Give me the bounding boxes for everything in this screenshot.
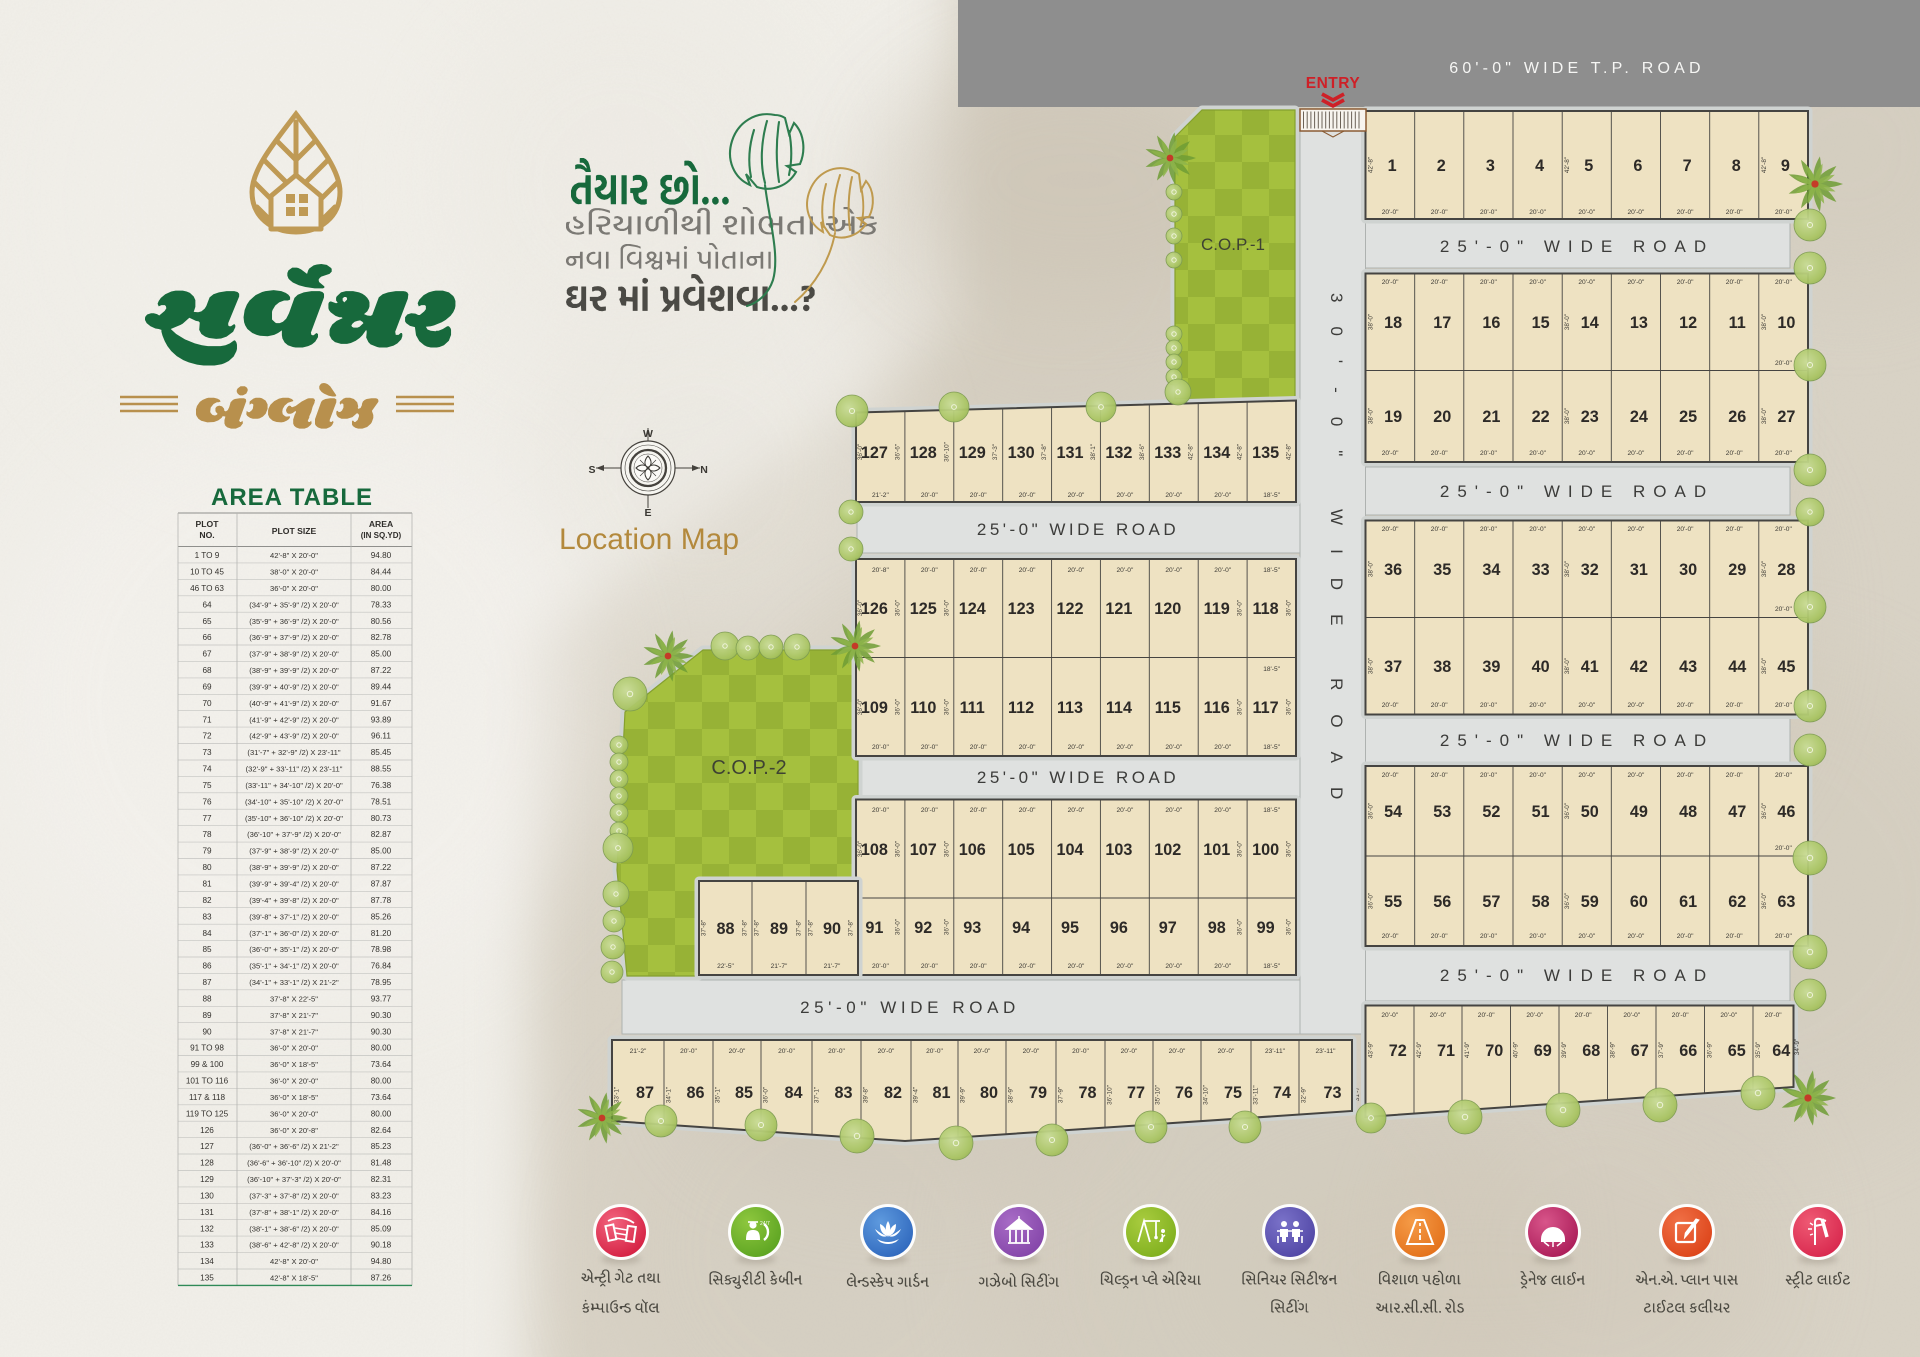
svg-text:20'-0": 20'-0" [1628,526,1645,533]
svg-text:41: 41 [1581,658,1599,676]
svg-text:20'-0": 20'-0" [1578,933,1595,940]
svg-text:88: 88 [716,920,734,938]
svg-text:119: 119 [1204,600,1230,618]
svg-text:(37'-1" + 36'-0" /2) X 20'-0": (37'-1" + 36'-0" /2) X 20'-0" [249,929,339,938]
svg-text:117: 117 [1253,699,1279,717]
svg-text:38'-6": 38'-6" [1139,444,1146,460]
svg-text:85.23: 85.23 [371,1142,392,1151]
svg-text:(36'-9" + 37'-9" /2) X 20'-0": (36'-9" + 37'-9" /2) X 20'-0" [249,633,339,642]
svg-text:42'-8": 42'-8" [1368,157,1375,173]
svg-text:20'-0": 20'-0" [1677,702,1694,709]
svg-text:71: 71 [202,715,212,724]
svg-text:38: 38 [1433,658,1451,676]
svg-text:20'-0": 20'-0" [1382,279,1399,286]
svg-text:86: 86 [686,1084,704,1102]
svg-text:20'-0": 20'-0" [1775,279,1792,286]
svg-text:(36'-10" + 37'-9" /2) X 20'-0": (36'-10" + 37'-9" /2) X 20'-0" [247,830,341,839]
svg-text:69: 69 [1534,1042,1552,1060]
svg-text:83: 83 [834,1084,852,1102]
svg-text:125: 125 [910,600,937,618]
svg-text:20'-0": 20'-0" [1165,567,1182,574]
svg-text:93.89: 93.89 [371,715,392,724]
svg-text:37'-8": 37'-8" [1041,444,1048,460]
svg-text:91.67: 91.67 [371,699,392,708]
svg-text:131: 131 [1056,444,1083,462]
svg-text:36'-0": 36'-0" [1368,803,1375,819]
svg-text:133: 133 [1154,444,1181,462]
svg-text:21'-7": 21'-7" [824,963,841,970]
svg-text:127: 127 [200,1142,214,1151]
svg-text:80.00: 80.00 [371,1044,392,1053]
svg-text:20'-0": 20'-0" [970,807,987,814]
svg-text:20'-0": 20'-0" [1480,279,1497,286]
svg-text:14: 14 [1581,314,1599,332]
svg-text:106: 106 [959,841,986,859]
svg-text:127: 127 [861,444,888,462]
svg-text:(39'-9" + 40'-9" /2) X 20'-0": (39'-9" + 40'-9" /2) X 20'-0" [249,683,339,692]
svg-text:99 & 100: 99 & 100 [191,1060,224,1069]
svg-text:33'-1": 33'-1" [614,1087,621,1103]
svg-text:45: 45 [1777,658,1795,676]
svg-text:10: 10 [1777,314,1795,332]
svg-text:78: 78 [1078,1084,1096,1102]
svg-text:90.18: 90.18 [371,1241,392,1250]
svg-text:74: 74 [1273,1084,1291,1102]
svg-text:121: 121 [1105,600,1132,618]
svg-text:E: E [644,507,651,519]
svg-text:29: 29 [1728,561,1746,579]
svg-text:36: 36 [1384,561,1402,579]
svg-text:27: 27 [1777,408,1795,426]
svg-text:36'-0": 36'-0" [1286,699,1293,715]
svg-text:72: 72 [1389,1042,1407,1060]
svg-text:24/7: 24/7 [760,1221,770,1227]
svg-text:20'-0": 20'-0" [921,744,938,751]
svg-text:36'-0": 36'-0" [1237,919,1244,935]
svg-text:96.11: 96.11 [371,732,391,741]
svg-text:36'-0": 36'-0" [1761,803,1768,819]
svg-text:111: 111 [960,699,985,717]
svg-text:20'-0": 20'-0" [1765,1012,1782,1019]
svg-text:36'-0": 36'-0" [1564,803,1571,819]
svg-text:20'-0": 20'-0" [970,567,987,574]
svg-text:20'-0": 20'-0" [1019,807,1036,814]
svg-text:74: 74 [202,765,212,774]
svg-text:42'-8" X 18'-5": 42'-8" X 18'-5" [270,1274,318,1283]
svg-text:20'-0": 20'-0" [1117,963,1134,970]
svg-text:18'-5": 18'-5" [1263,963,1280,970]
svg-text:101 TO 116: 101 TO 116 [186,1077,229,1086]
svg-text:31: 31 [1630,561,1648,579]
svg-text:20'-0": 20'-0" [1480,209,1497,216]
svg-text:36'-0": 36'-0" [1237,600,1244,616]
svg-text:82.64: 82.64 [371,1126,392,1135]
svg-text:36'-0": 36'-0" [894,919,901,935]
svg-text:20'-0": 20'-0" [1165,492,1182,499]
svg-text:20'-0": 20'-0" [1529,772,1546,779]
svg-text:(37'-8" + 38'-1" /2) X 20'-0": (37'-8" + 38'-1" /2) X 20'-0" [249,1208,339,1217]
svg-text:50: 50 [1581,803,1599,821]
svg-text:135: 135 [1252,444,1279,462]
svg-text:4: 4 [1535,157,1544,175]
svg-text:23'-11": 23'-11" [1265,1048,1286,1055]
svg-text:(36'-6" + 36'-10" /2) X 20'-0": (36'-6" + 36'-10" /2) X 20'-0" [247,1159,341,1168]
svg-text:80: 80 [980,1084,998,1102]
svg-text:35'-9": 35'-9" [1755,1042,1762,1058]
svg-text:82.31: 82.31 [371,1175,392,1184]
svg-text:62: 62 [1728,893,1746,911]
svg-text:128: 128 [200,1159,214,1168]
svg-text:82.87: 82.87 [371,830,392,839]
svg-text:37'-1": 37'-1" [814,1087,821,1103]
svg-text:131: 131 [200,1208,214,1217]
svg-text:20'-0": 20'-0" [1382,209,1399,216]
svg-text:100: 100 [1252,841,1279,859]
svg-text:75: 75 [202,781,212,790]
svg-text:20'-0": 20'-0" [1478,1012,1495,1019]
svg-text:35'-10": 35'-10" [1155,1085,1162,1105]
svg-text:76: 76 [202,797,212,806]
svg-text:85: 85 [735,1084,753,1102]
svg-text:102: 102 [1154,841,1181,859]
svg-text:57: 57 [1482,893,1500,911]
svg-text:87.26: 87.26 [371,1274,392,1283]
svg-text:42'-8" X 20'-0": 42'-8" X 20'-0" [270,551,318,560]
svg-text:48: 48 [1679,803,1697,821]
svg-text:65: 65 [202,617,212,626]
svg-text:44: 44 [1728,658,1746,676]
svg-text:20'-0": 20'-0" [921,963,938,970]
svg-text:10 TO 45: 10 TO 45 [190,568,224,577]
svg-text:PLOT SIZE: PLOT SIZE [272,526,317,536]
svg-text:135: 135 [200,1274,214,1283]
svg-text:19: 19 [1384,408,1402,426]
svg-text:20'-0": 20'-0" [1720,1012,1737,1019]
svg-text:20'-0": 20'-0" [1775,845,1792,852]
svg-text:(34'-9" + 35'-9" /2) X 20'-0": (34'-9" + 35'-9" /2) X 20'-0" [249,600,339,609]
svg-text:36'-0": 36'-0" [943,841,950,857]
svg-text:73: 73 [1323,1084,1341,1102]
svg-text:20'-0": 20'-0" [1726,450,1743,457]
svg-text:(35'-1" + 34'-1" /2) X 20'-0": (35'-1" + 34'-1" /2) X 20'-0" [249,962,339,971]
svg-text:20'-0": 20'-0" [1775,209,1792,216]
svg-text:38'-9": 38'-9" [1008,1087,1015,1103]
svg-text:20'-0": 20'-0" [1381,1012,1398,1019]
svg-text:130: 130 [1008,444,1035,462]
svg-text:81: 81 [202,880,212,889]
svg-text:20'-0": 20'-0" [1480,933,1497,940]
svg-text:93: 93 [963,919,981,937]
svg-text:41'-9": 41'-9" [1464,1042,1471,1058]
svg-text:108: 108 [861,841,888,859]
svg-text:36'-0" X 20'-8": 36'-0" X 20'-8" [270,1126,318,1135]
svg-text:20'-0": 20'-0" [1628,279,1645,286]
svg-text:64: 64 [1772,1042,1790,1060]
svg-text:37'-8" X 22'-5": 37'-8" X 22'-5" [270,994,318,1003]
svg-text:38'-0": 38'-0" [1564,314,1571,330]
svg-text:20'-0": 20'-0" [1068,492,1085,499]
svg-text:37'-8" X 21'-7": 37'-8" X 21'-7" [270,1011,318,1020]
svg-text:20'-0": 20'-0" [1578,279,1595,286]
svg-text:20'-0": 20'-0" [1117,567,1134,574]
svg-text:115: 115 [1155,699,1181,717]
svg-text:20'-0": 20'-0" [1578,772,1595,779]
svg-text:20'-0": 20'-0" [1628,702,1645,709]
svg-text:36'-0": 36'-0" [763,1087,770,1103]
svg-text:20'-0": 20'-0" [1121,1048,1138,1055]
svg-text:84: 84 [784,1084,802,1102]
svg-text:36'-0": 36'-0" [857,600,864,616]
svg-text:36'-0": 36'-0" [857,841,864,857]
svg-text:80.73: 80.73 [371,814,392,823]
svg-text:123: 123 [1008,600,1035,618]
svg-text:20'-0": 20'-0" [1775,933,1792,940]
svg-text:20'-0": 20'-0" [1775,360,1792,367]
svg-text:7: 7 [1683,157,1692,175]
svg-text:34'-9": 34'-9" [1794,1039,1801,1055]
svg-text:20'-0": 20'-0" [1775,772,1792,779]
svg-text:129: 129 [959,444,986,462]
svg-text:46 TO 63: 46 TO 63 [190,584,224,593]
svg-text:20'-0": 20'-0" [1431,209,1448,216]
svg-text:54: 54 [1384,803,1402,821]
svg-text:20'-0": 20'-0" [1529,450,1546,457]
svg-text:55: 55 [1384,893,1402,911]
svg-text:77: 77 [1127,1084,1145,1102]
svg-text:20'-0": 20'-0" [1214,807,1231,814]
svg-text:37'-8" X 21'-7": 37'-8" X 21'-7" [270,1027,318,1036]
svg-text:PLOT: PLOT [196,519,220,529]
svg-text:38'-0": 38'-0" [1368,408,1375,424]
svg-text:(38'-1" + 38'-6" /2) X 20'-0": (38'-1" + 38'-6" /2) X 20'-0" [249,1224,339,1233]
svg-text:20'-8": 20'-8" [872,567,889,574]
svg-text:20: 20 [1433,408,1451,426]
svg-text:20'-0": 20'-0" [1382,933,1399,940]
svg-text:20'-0": 20'-0" [1775,450,1792,457]
svg-text:24: 24 [1630,408,1648,426]
svg-text:20'-0": 20'-0" [1726,933,1743,940]
svg-text:(38'-6" + 42'-8" /2) X 20'-0": (38'-6" + 42'-8" /2) X 20'-0" [249,1241,339,1250]
svg-text:40'-9": 40'-9" [1513,1042,1520,1058]
svg-text:37'-8": 37'-8" [808,920,815,936]
svg-text:20'-0": 20'-0" [1019,963,1036,970]
svg-text:20'-0": 20'-0" [1068,963,1085,970]
svg-text:W: W [643,428,653,440]
svg-text:20'-0": 20'-0" [1726,772,1743,779]
svg-text:1: 1 [1388,157,1397,175]
svg-text:75: 75 [1224,1084,1242,1102]
svg-text:80.00: 80.00 [371,1077,392,1086]
svg-text:N: N [700,464,708,476]
svg-text:26: 26 [1728,408,1746,426]
svg-text:22: 22 [1532,408,1550,426]
svg-text:(41'-9" + 42'-9" /2) X 20'-0": (41'-9" + 42'-9" /2) X 20'-0" [249,715,339,724]
svg-text:37'-8": 37'-8" [754,920,761,936]
svg-text:36'-0": 36'-0" [943,919,950,935]
svg-text:56: 56 [1433,893,1451,911]
svg-text:42'-8" X 20'-0": 42'-8" X 20'-0" [270,1257,318,1266]
svg-text:20'-0": 20'-0" [1382,772,1399,779]
svg-text:(40'-9" + 41'-9" /2) X 20'-0": (40'-9" + 41'-9" /2) X 20'-0" [249,699,339,708]
svg-text:20'-0": 20'-0" [1218,1048,1235,1055]
svg-text:38'-0": 38'-0" [1368,561,1375,577]
svg-text:87: 87 [636,1084,654,1102]
svg-text:35: 35 [1433,561,1451,579]
svg-text:20'-0": 20'-0" [1628,772,1645,779]
svg-text:(38'-9" + 39'-9" /2) X 20'-0": (38'-9" + 39'-9" /2) X 20'-0" [249,863,339,872]
svg-text:98: 98 [1208,919,1226,937]
svg-text:NO.: NO. [199,530,214,540]
svg-text:20'-0": 20'-0" [1117,492,1134,499]
svg-text:20'-0": 20'-0" [1023,1048,1040,1055]
svg-text:37'-8": 37'-8" [796,920,803,936]
svg-text:78.51: 78.51 [371,797,392,806]
svg-text:20'-0": 20'-0" [1068,744,1085,751]
svg-text:(34'-10" + 35'-10" /2) X 20'-0: (34'-10" + 35'-10" /2) X 20'-0" [245,797,343,806]
svg-text:90: 90 [202,1027,212,1036]
svg-text:Location Map: Location Map [559,523,739,556]
svg-text:37'-9": 37'-9" [1658,1042,1665,1058]
svg-text:89: 89 [770,920,788,938]
svg-text:68: 68 [202,666,212,675]
svg-text:63: 63 [1777,893,1795,911]
svg-text:97: 97 [1159,919,1177,937]
svg-text:20'-0": 20'-0" [1578,450,1595,457]
svg-text:21'-7": 21'-7" [771,963,788,970]
svg-text:20'-0": 20'-0" [1214,492,1231,499]
svg-text:35'-1": 35'-1" [715,1087,722,1103]
svg-text:67: 67 [202,650,212,659]
svg-text:32: 32 [1581,561,1599,579]
svg-text:42'-8": 42'-8" [1564,157,1571,173]
svg-text:94.80: 94.80 [371,1257,392,1266]
svg-text:20'-0": 20'-0" [872,807,889,814]
svg-text:82.78: 82.78 [371,633,392,642]
svg-text:36'-10": 36'-10" [1107,1085,1114,1105]
svg-text:32'-9": 32'-9" [1301,1087,1308,1103]
svg-text:42'-9": 42'-9" [1416,1042,1423,1058]
svg-text:20'-0": 20'-0" [872,744,889,751]
svg-text:20'-0": 20'-0" [1169,1048,1186,1055]
svg-text:85.09: 85.09 [371,1224,392,1233]
svg-text:38'-0": 38'-0" [1761,561,1768,577]
svg-text:36'-0" X 20'-0": 36'-0" X 20'-0" [270,1044,318,1053]
svg-text:(32'-9" + 33'-11" /2) X 23'-11: (32'-9" + 33'-11" /2) X 23'-11" [246,765,343,774]
svg-text:83: 83 [202,912,212,921]
svg-text:9: 9 [1781,157,1790,175]
svg-text:103: 103 [1105,841,1132,859]
svg-text:78.33: 78.33 [371,600,392,609]
svg-text:36'-0": 36'-0" [1368,893,1375,909]
svg-text:20'-0": 20'-0" [1775,526,1792,533]
svg-text:53: 53 [1433,803,1451,821]
svg-text:38'-0": 38'-0" [1564,658,1571,674]
svg-text:34'-1": 34'-1" [666,1087,673,1103]
svg-text:132: 132 [1105,444,1132,462]
svg-text:S: S [588,464,595,476]
svg-text:38'-0": 38'-0" [1368,314,1375,330]
svg-text:(39'-9" + 39'-4" /2) X 20'-0": (39'-9" + 39'-4" /2) X 20'-0" [249,880,339,889]
svg-text:38'-0": 38'-0" [1564,408,1571,424]
svg-text:132: 132 [200,1224,214,1233]
svg-text:33'-11": 33'-11" [1253,1085,1260,1104]
svg-text:82: 82 [202,896,212,905]
svg-text:33: 33 [1532,561,1550,579]
svg-text:78: 78 [202,830,212,839]
svg-text:20'-0": 20'-0" [1430,1012,1447,1019]
svg-text:AREA TABLE: AREA TABLE [211,484,373,511]
svg-text:25'-0" WIDE ROAD: 25'-0" WIDE ROAD [1440,237,1714,256]
svg-text:72: 72 [202,732,212,741]
svg-text:36'-0" X 20'-0": 36'-0" X 20'-0" [270,584,318,593]
svg-text:39: 39 [1482,658,1500,676]
svg-text:20'-0": 20'-0" [921,807,938,814]
svg-text:20'-0": 20'-0" [1575,1012,1592,1019]
svg-text:36'-0": 36'-0" [1761,893,1768,909]
svg-text:30'-0" WIDE ROAD: 30'-0" WIDE ROAD [1327,293,1346,823]
svg-text:3: 3 [1486,157,1495,175]
svg-text:130: 130 [200,1192,214,1201]
svg-text:66: 66 [1679,1042,1697,1060]
svg-text:20'-0": 20'-0" [1480,526,1497,533]
svg-text:20'-0": 20'-0" [1214,567,1231,574]
svg-text:109: 109 [861,699,888,717]
svg-text:91: 91 [865,919,883,937]
svg-text:20'-0": 20'-0" [878,1048,895,1055]
svg-text:20'-0": 20'-0" [828,1048,845,1055]
svg-text:46: 46 [1777,803,1795,821]
svg-text:20'-0": 20'-0" [1677,526,1694,533]
svg-text:81.20: 81.20 [371,929,392,938]
svg-text:36'-0" X 20'-0": 36'-0" X 20'-0" [270,1077,318,1086]
svg-text:C.O.P.-1: C.O.P.-1 [1201,235,1265,254]
svg-text:76.38: 76.38 [371,781,392,790]
svg-text:107: 107 [910,841,937,859]
svg-text:(35'-9" + 36'-9" /2) X 20'-0": (35'-9" + 36'-9" /2) X 20'-0" [249,617,339,626]
svg-text:94.80: 94.80 [371,551,392,560]
svg-text:60: 60 [1630,893,1648,911]
svg-text:71: 71 [1437,1042,1455,1060]
svg-text:120: 120 [1154,600,1181,618]
svg-text:80.00: 80.00 [371,1109,392,1118]
svg-text:99: 99 [1257,919,1275,937]
svg-text:20'-0": 20'-0" [926,1048,943,1055]
svg-text:38'-0" X 20'-0": 38'-0" X 20'-0" [270,568,318,577]
svg-text:118: 118 [1253,600,1279,618]
svg-text:40: 40 [1532,658,1550,676]
svg-text:70: 70 [1485,1042,1503,1060]
svg-text:104: 104 [1056,841,1083,859]
svg-text:1 TO 9: 1 TO 9 [195,551,220,560]
svg-text:36'-0": 36'-0" [894,841,901,857]
svg-text:133: 133 [200,1241,214,1250]
svg-text:124: 124 [959,600,986,618]
svg-text:20'-0": 20'-0" [1117,807,1134,814]
svg-text:73.64: 73.64 [371,1060,392,1069]
svg-text:25'-0" WIDE ROAD: 25'-0" WIDE ROAD [977,520,1179,539]
svg-text:(31'-7" + 32'-9" /2) X 23'-11": (31'-7" + 32'-9" /2) X 23'-11" [247,748,340,757]
svg-text:25'-0" WIDE ROAD: 25'-0" WIDE ROAD [1440,731,1714,750]
svg-text:65: 65 [1728,1042,1746,1060]
svg-text:20'-0": 20'-0" [1628,209,1645,216]
svg-text:20'-0": 20'-0" [1623,1012,1640,1019]
svg-text:92: 92 [914,919,932,937]
svg-text:20'-0": 20'-0" [1382,702,1399,709]
svg-text:20'-0": 20'-0" [1165,963,1182,970]
svg-text:(37'-3" + 37'-8" /2) X 20'-0": (37'-3" + 37'-8" /2) X 20'-0" [249,1192,339,1201]
svg-text:22'-5": 22'-5" [717,963,734,970]
svg-text:36'-0": 36'-0" [857,699,864,715]
